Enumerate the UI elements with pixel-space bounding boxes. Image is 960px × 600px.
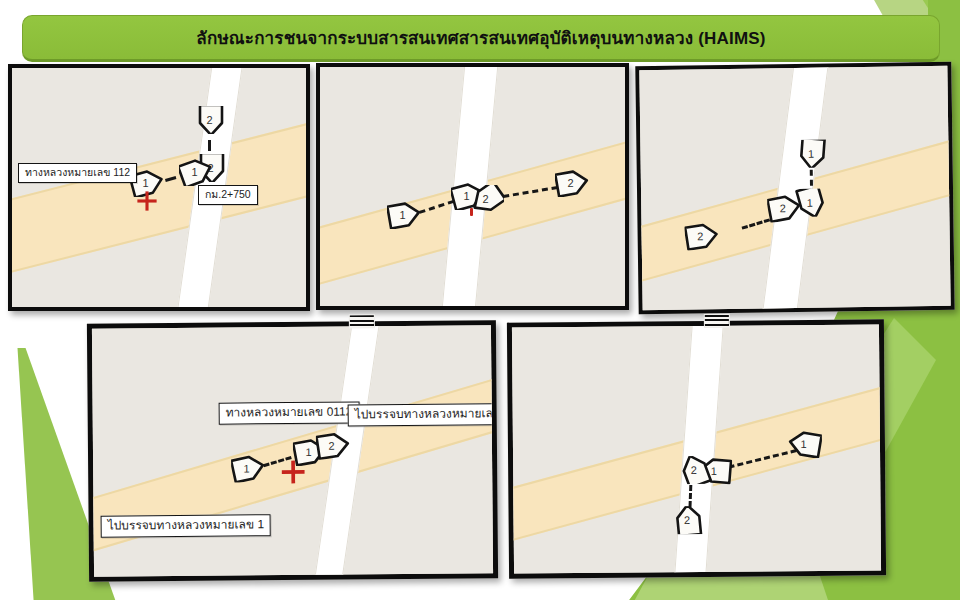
vehicle-2-marker: 2 bbox=[767, 194, 801, 222]
vehicle-2-marker: 2 bbox=[678, 456, 712, 484]
slide: ลักษณะการชนจากระบบสารสนเทศสารสนเทศอุบัติ… bbox=[0, 0, 960, 600]
svg-text:1: 1 bbox=[191, 166, 197, 178]
crash-tick-icon bbox=[470, 208, 473, 216]
trajectory-dashed-line bbox=[810, 170, 813, 186]
map-panel-top-middle: 1122 bbox=[316, 63, 629, 310]
map-panel-bottom-right: 1122 bbox=[507, 319, 886, 578]
vehicle-2-marker: 2 bbox=[555, 169, 589, 197]
road-label: ทางหลวงหมายเลข 112 bbox=[18, 163, 137, 183]
svg-text:1: 1 bbox=[142, 177, 148, 189]
vehicle-2-marker: 2 bbox=[684, 222, 718, 250]
vehicle-1-marker: 1 bbox=[231, 454, 265, 482]
svg-text:2: 2 bbox=[780, 202, 786, 214]
map-image: 1122 bbox=[512, 324, 881, 573]
svg-text:2: 2 bbox=[691, 464, 697, 476]
svg-text:2: 2 bbox=[684, 514, 690, 526]
road-label: ไปบรรจบทางหลวงหมายเลข 1 bbox=[101, 514, 272, 537]
grip-lines-icon bbox=[350, 315, 374, 327]
trajectory-dashed-line bbox=[208, 140, 211, 151]
slide-title-banner: ลักษณะการชนจากระบบสารสนเทศสารสนเทศอุบัติ… bbox=[22, 15, 940, 62]
svg-text:1: 1 bbox=[800, 438, 806, 450]
svg-text:2: 2 bbox=[567, 177, 573, 189]
road-label: ทางหลวงหมายเลข 0112 bbox=[219, 401, 360, 424]
map-image: 112ทางหลวงหมายเลข 0112ไปบรรจบทางหลวงหมาย… bbox=[92, 325, 493, 576]
slide-title: ลักษณะการชนจากระบบสารสนเทศสารสนเทศอุบัติ… bbox=[196, 24, 765, 51]
svg-text:1: 1 bbox=[463, 190, 469, 202]
road-label: ไปบรรจบทางหลวงหมายเลข 101 bbox=[348, 403, 493, 427]
svg-text:2: 2 bbox=[206, 114, 212, 126]
map-panel-top-left: 2211ทางหลวงหมายเลข 112กม.2+750 bbox=[8, 64, 310, 311]
svg-text:1: 1 bbox=[244, 462, 250, 474]
map-image: 2211ทางหลวงหมายเลข 112กม.2+750 bbox=[12, 68, 306, 307]
svg-text:1: 1 bbox=[807, 197, 813, 209]
vehicle-2-marker: 2 bbox=[470, 185, 504, 213]
vehicle-1-marker: 1 bbox=[788, 430, 822, 458]
grip-lines-icon bbox=[705, 315, 729, 327]
svg-text:2: 2 bbox=[697, 230, 703, 242]
crash-point-cross-icon bbox=[280, 459, 306, 485]
svg-text:2: 2 bbox=[328, 440, 334, 452]
vehicle-1-marker: 1 bbox=[795, 140, 829, 168]
map-panel-bottom-left: 112ทางหลวงหมายเลข 0112ไปบรรจบทางหลวงหมาย… bbox=[87, 320, 498, 582]
svg-text:1: 1 bbox=[305, 446, 311, 458]
road-label: กม.2+750 bbox=[198, 185, 258, 205]
svg-text:2: 2 bbox=[482, 193, 488, 205]
map-panel-top-right: 1122 bbox=[635, 62, 954, 314]
vehicle-1-marker: 1 bbox=[179, 158, 213, 186]
highway-band bbox=[12, 111, 306, 287]
vehicle-2-marker: 2 bbox=[671, 506, 705, 534]
vehicle-2-marker: 2 bbox=[316, 431, 350, 459]
crash-point-cross-icon bbox=[136, 190, 158, 212]
map-image: 1122 bbox=[639, 66, 950, 310]
vehicle-1-marker: 1 bbox=[387, 201, 421, 229]
svg-text:1: 1 bbox=[808, 148, 814, 160]
map-image: 1122 bbox=[320, 67, 625, 306]
vehicle-2-marker: 2 bbox=[194, 106, 228, 134]
svg-text:1: 1 bbox=[399, 209, 405, 221]
